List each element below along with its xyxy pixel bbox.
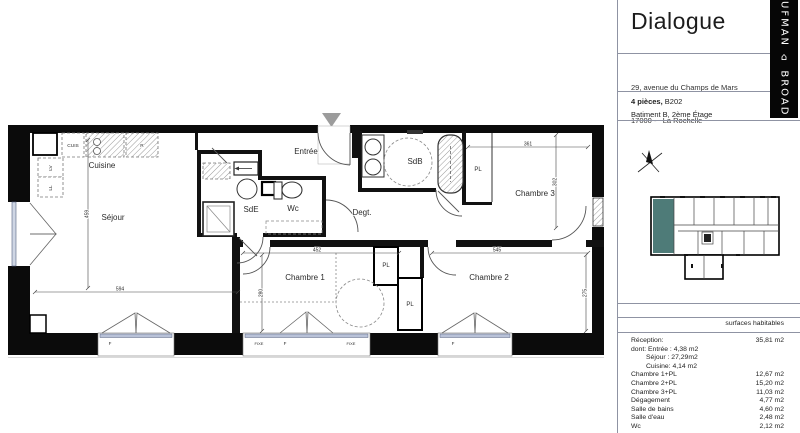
divider <box>618 317 800 318</box>
toilet-bowl <box>282 182 302 198</box>
surface-table-row: Cuisine: 4,14 m2 <box>631 363 784 372</box>
window-bays: F FIXE F FIXE F <box>98 312 512 356</box>
floor-plan: F FIXE F FIXE F <box>0 0 617 433</box>
dim-ch2-h: 275 <box>583 289 589 298</box>
label-wc: Wc <box>287 204 299 213</box>
dim-ch1-h: 280 <box>259 289 265 298</box>
highlighted-unit <box>653 199 674 253</box>
toilet-tank <box>274 182 282 199</box>
dim-ch1-w: 452 <box>313 248 322 254</box>
label-chambre2: Chambre 2 <box>469 273 509 282</box>
dim-ch3-w: 361 <box>524 142 533 148</box>
label-pl-ch1: PL <box>382 263 390 269</box>
label-sejour: Séjour <box>101 213 124 222</box>
compass-icon <box>638 150 662 172</box>
label-sde: SdE <box>243 205 258 214</box>
logo-text: UFMAN ⌂ BROAD <box>779 1 790 116</box>
window-label: F <box>284 341 287 346</box>
label-lv: LV <box>48 164 54 170</box>
room-labels: Cuisine Séjour Entrée SdE Wc Degt. SdB C… <box>89 147 556 282</box>
window-label: F <box>109 341 112 346</box>
divider <box>618 53 770 54</box>
window-left <box>8 202 56 266</box>
dim-sejour-h: 459 <box>85 210 91 219</box>
divider <box>618 91 770 92</box>
floorplan-page: { "header": { "title": "Dialogue", "bran… <box>0 0 800 433</box>
basin-1 <box>365 139 381 155</box>
surface-table-row: dont: Entrée : 4,38 m2 <box>631 346 784 355</box>
cabinet <box>262 182 275 195</box>
entrance-door <box>318 126 350 165</box>
surface-table-row: Chambre 1+PL12,67 m2 <box>631 371 784 380</box>
unit-type: 4 pièces, <box>631 97 663 106</box>
sde-fixtures <box>203 162 275 236</box>
entrance-arrow-icon <box>322 113 341 127</box>
label-chambre1: Chambre 1 <box>285 273 325 282</box>
surface-table-row: Chambre 2+PL15,20 m2 <box>631 380 784 389</box>
surface-table-header: surfaces habitables <box>618 320 784 327</box>
window-right <box>592 197 604 227</box>
surface-table-row: Chambre 3+PL11,03 m2 <box>631 389 784 398</box>
label-r: R <box>140 143 144 149</box>
window-label: F <box>452 341 455 346</box>
window-label: FIXE <box>347 341 356 346</box>
dim-sejour-w: 594 <box>116 287 125 293</box>
label-pl-sdb: PL <box>474 167 482 173</box>
duct-shaft <box>33 133 57 155</box>
label-cuisine: Cuisine <box>89 161 116 170</box>
kaufman-broad-logo: UFMAN ⌂ BROAD <box>770 0 798 118</box>
page-title: Dialogue <box>631 8 726 35</box>
surface-table-row: Réception:35,81 m2 <box>631 337 784 346</box>
surface-table-row: Salle de bains4,60 m2 <box>631 406 784 415</box>
title-block-panel: Dialogue UFMAN ⌂ BROAD 29, avenue du Cha… <box>617 0 800 433</box>
label-degt: Degt. <box>352 208 371 217</box>
high-window <box>407 130 423 134</box>
dim-ch3-h: 302 <box>553 178 559 187</box>
label-entree: Entrée <box>294 147 318 156</box>
sink-counter <box>86 133 124 157</box>
surface-table-row: Salle d'eau2,48 m2 <box>631 414 784 423</box>
surface-table-row: Wc2,12 m2 <box>631 423 784 432</box>
washbasin <box>237 179 257 199</box>
label-pl-ch2: PL <box>406 302 414 308</box>
divider <box>618 303 800 304</box>
key-plan <box>618 120 800 303</box>
bay-chambre2: F <box>438 313 512 356</box>
label-sdb: SdB <box>407 157 422 166</box>
dim-ch2-w: 545 <box>493 248 502 254</box>
label-ll: LL <box>48 185 54 191</box>
basin-2 <box>365 159 381 175</box>
building-floor: Batiment B, 2ème Étage <box>631 110 712 119</box>
label-chambre3: Chambre 3 <box>515 189 555 198</box>
closets <box>374 247 422 330</box>
dimension-labels: 594 452 545 361 459 280 302 275 <box>85 142 589 298</box>
wall-notch <box>30 315 46 333</box>
label-cuis: CUIS <box>67 143 78 149</box>
unit-number: B202 <box>663 97 683 106</box>
surface-table: Réception:35,81 m2 dont: Entrée : 4,38 m… <box>631 337 784 432</box>
surface-table-row: Dégagement4,77 m2 <box>631 397 784 406</box>
elevator-core <box>704 234 711 242</box>
surface-table-row: Séjour : 27,29m2 <box>631 354 784 363</box>
window-label: FIXE <box>255 341 264 346</box>
divider <box>618 332 800 333</box>
unit-info: 4 pièces, B202 <box>631 97 682 106</box>
bay-sejour: F <box>98 313 174 356</box>
washing-machine <box>203 163 230 179</box>
